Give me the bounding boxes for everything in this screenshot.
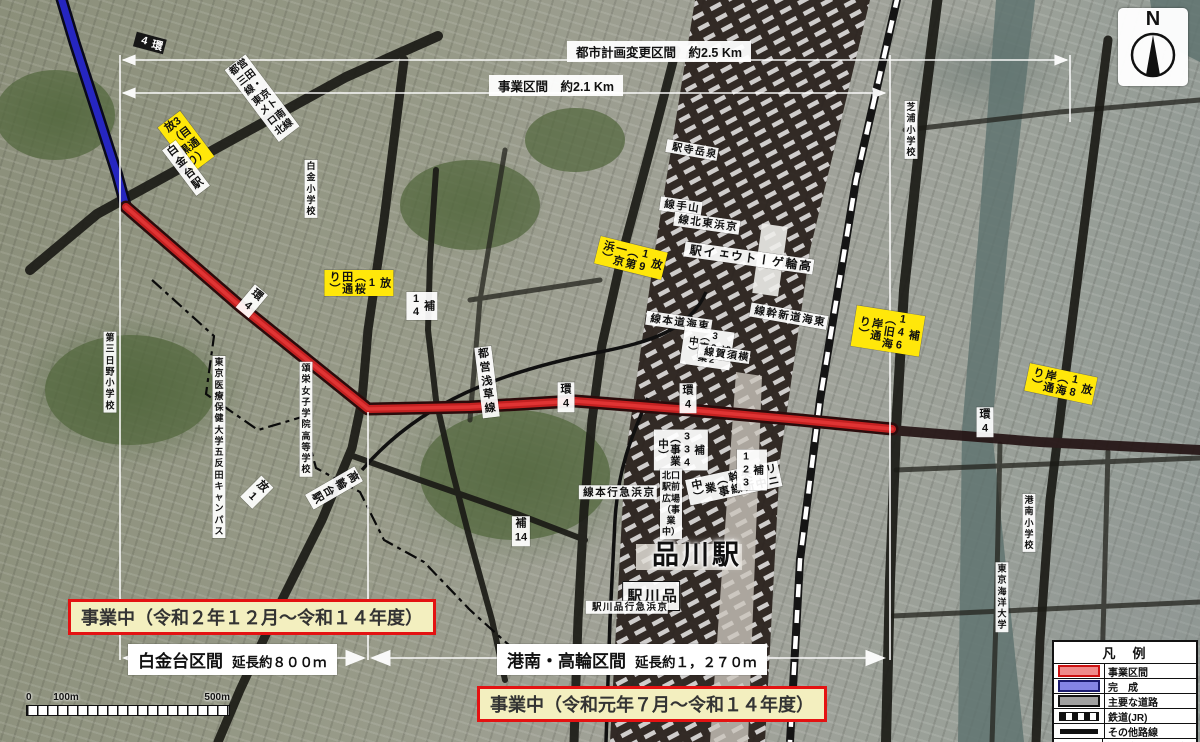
section-name: 白金台区間 — [138, 647, 223, 672]
kan4-b-label: 環4 — [680, 383, 697, 413]
compass-icon — [1126, 29, 1180, 81]
ho123-label: 補123 — [737, 450, 767, 491]
keikyu-shinagawa-sta-label: 京浜急行品川駅 — [586, 601, 668, 614]
legend-label: 事業区間 — [1105, 664, 1196, 679]
ho14-v-label: 補14 — [406, 292, 437, 320]
thick-line-swatch — [1054, 724, 1105, 738]
legend-label: 鉄道(JR) — [1105, 709, 1196, 724]
banner-konan-takanawa-status: 事業中（令和元年７月～令和１４年度） — [477, 686, 827, 722]
legend-row-shuyo-doro: 主要な道路 — [1054, 693, 1196, 708]
kitaguchi-plaza-label: 北口駅前広場 （事業中） — [660, 469, 682, 539]
ho14-h-label: 補14 — [512, 516, 530, 546]
legend-row-kansei: 完 成 — [1054, 678, 1196, 693]
iryo-univ-label: 東京医療保健大学 五反田キャンパス — [212, 356, 225, 538]
shibaura-es-label: 芝浦 小学校 — [904, 101, 917, 159]
kan4-c-label: 環4 — [977, 407, 994, 437]
gray-bar-swatch — [1054, 694, 1105, 708]
aerial-project-map: 環4放3（目黒通り）白金台駅都営三田線・ 東京メトロ南北線白金 小学校放1（桜田… — [0, 0, 1200, 742]
section-length: 延長約１，２７０ｍ — [635, 651, 757, 671]
shoei-hs-label: 頌栄女子学院 高等学校 — [299, 362, 312, 477]
scale-mid: 100m — [53, 692, 79, 703]
kaiyo-univ-label: 東京海洋大学 — [995, 562, 1008, 632]
dai3hino-es-label: 第三日野 小学校 — [103, 332, 116, 413]
blue-bar-swatch — [1054, 679, 1105, 693]
kan4-a-label: 環4 — [558, 382, 575, 412]
scale-bar: 0 100m 500m — [26, 692, 230, 716]
legend-row-gyosei-kyokai: 行政境界（都県境） — [1054, 738, 1196, 742]
scale-start: 0 — [26, 692, 32, 703]
section-label-konan-takanawa: 港南・高輪区間 延長約１，２７０ｍ — [497, 644, 767, 675]
legend-row-sonota-rosen: その他路線 — [1054, 723, 1196, 738]
keikyu-line-label: 京浜急行本線 — [579, 485, 657, 499]
scale-bar-graphic — [26, 705, 230, 716]
section-name: 港南・高輪区間 — [507, 647, 626, 672]
konan-es-label: 港南 小学校 — [1022, 494, 1035, 552]
shirokane-es-label: 白金 小学校 — [304, 160, 317, 218]
legend-label: 行政境界（都県境） — [1103, 739, 1196, 742]
legend-title: 凡 例 — [1054, 642, 1196, 664]
red-bar-swatch — [1054, 664, 1105, 678]
north-label: N — [1118, 9, 1188, 29]
section-length: 延長約８００ｍ — [232, 651, 327, 671]
railway-swatch — [1054, 709, 1105, 723]
legend-label: その他路線 — [1105, 724, 1196, 739]
ho334-label: 補334 （事業中） — [654, 430, 708, 471]
dimension-label-inner: 事業区間 約2.1 Km — [489, 75, 623, 96]
road-kan4-east — [890, 430, 1200, 450]
legend-label: 完 成 — [1105, 679, 1196, 694]
legend-label: 主要な道路 — [1105, 694, 1196, 709]
banner-shirokanedai-status: 事業中（令和２年１２月～令和１４年度） — [68, 599, 436, 635]
section-label-shirokanedai: 白金台区間 延長約８００ｍ — [128, 644, 337, 675]
dimension-label-outer: 都市計画変更区間 約2.5 Km — [567, 41, 751, 62]
shinagawa-sta-big-label: 品川駅 — [649, 538, 745, 574]
legend-row-tetsudo-jr: 鉄道(JR) — [1054, 708, 1196, 723]
scale-end: 500m — [204, 692, 230, 703]
north-arrow: N — [1118, 8, 1188, 86]
ho1-sakurada-label: 放1（桜田通り） — [324, 270, 393, 296]
jr-rail-yard — [610, 0, 870, 742]
legend: 凡 例 事業区間完 成主要な道路鉄道(JR)その他路線行政境界（都県境） — [1052, 640, 1198, 742]
legend-row-jigyo-kukan: 事業区間 — [1054, 664, 1196, 678]
